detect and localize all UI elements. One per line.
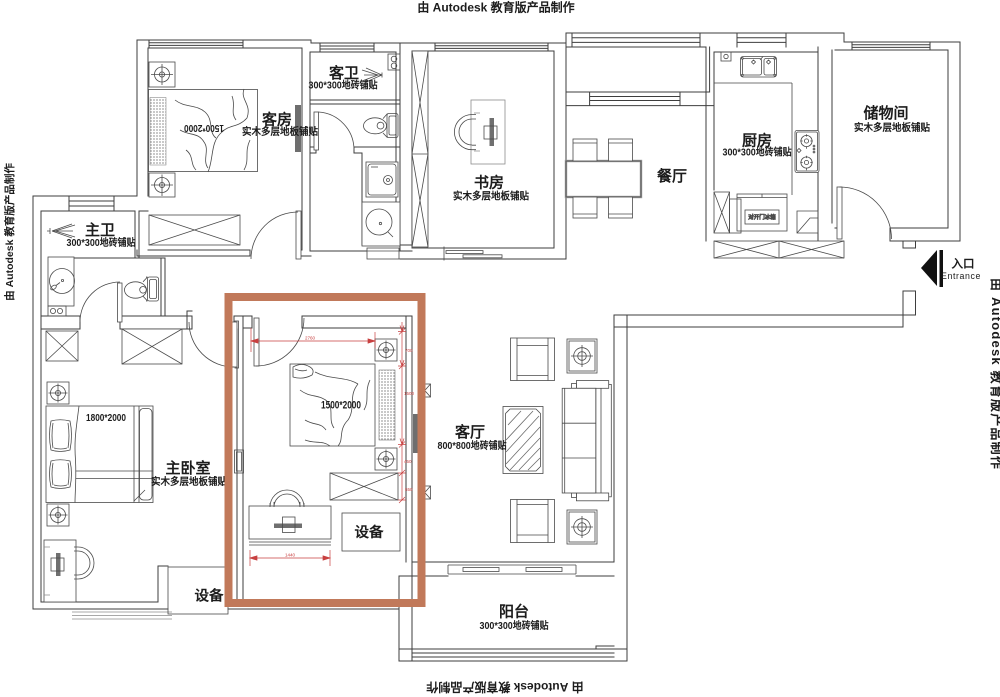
svg-text:书房: 书房 <box>474 174 504 192</box>
svg-text:客卫: 客卫 <box>328 64 359 82</box>
svg-text:1500*2000: 1500*2000 <box>184 122 224 134</box>
svg-text:1800*2000: 1800*2000 <box>86 412 126 424</box>
svg-text:餐厅: 餐厅 <box>657 167 687 185</box>
svg-text:300*300地砖铺贴: 300*300地砖铺贴 <box>309 79 378 92</box>
svg-text:客厅: 客厅 <box>454 423 485 441</box>
svg-text:实木多层地板铺贴: 实木多层地板铺贴 <box>242 125 318 138</box>
svg-text:设备: 设备 <box>355 524 385 540</box>
svg-text:300*300地砖铺贴: 300*300地砖铺贴 <box>480 619 549 632</box>
svg-text:由 Autodesk 教育版产品制作: 由 Autodesk 教育版产品制作 <box>989 278 1000 470</box>
svg-text:450: 450 <box>404 459 412 464</box>
svg-text:由 Autodesk 教育版产品制作: 由 Autodesk 教育版产品制作 <box>417 0 574 15</box>
svg-text:300*300地砖铺贴: 300*300地砖铺贴 <box>67 236 136 249</box>
svg-text:入口: 入口 <box>952 258 975 271</box>
svg-text:阳台: 阳台 <box>499 603 529 621</box>
svg-text:储物间: 储物间 <box>864 104 909 122</box>
svg-text:700: 700 <box>405 348 413 353</box>
svg-text:550: 550 <box>405 487 413 492</box>
svg-text:1500: 1500 <box>404 391 415 396</box>
svg-text:主卧室: 主卧室 <box>166 459 211 477</box>
svg-text:客房: 客房 <box>261 111 292 129</box>
svg-text:800*800地砖铺贴: 800*800地砖铺贴 <box>438 439 507 452</box>
svg-text:由 Autodesk 教育版产品制作: 由 Autodesk 教育版产品制作 <box>3 163 16 301</box>
svg-text:实木多层地板铺贴: 实木多层地板铺贴 <box>151 475 227 488</box>
svg-text:实木多层地板铺贴: 实木多层地板铺贴 <box>854 121 930 134</box>
svg-text:2760: 2760 <box>305 336 316 341</box>
svg-text:Entrance: Entrance <box>941 271 981 281</box>
svg-text:由 Autodesk 教育版产品制作: 由 Autodesk 教育版产品制作 <box>426 680 583 695</box>
svg-text:1440: 1440 <box>285 553 296 558</box>
svg-text:实木多层地板铺贴: 实木多层地板铺贴 <box>453 190 529 203</box>
svg-text:300*300地砖铺贴: 300*300地砖铺贴 <box>723 146 792 159</box>
svg-text:设备: 设备 <box>195 588 225 604</box>
svg-text:1500*2000: 1500*2000 <box>321 400 361 412</box>
svg-text:主卫: 主卫 <box>85 221 115 239</box>
svg-text:对开门冰箱: 对开门冰箱 <box>748 213 776 221</box>
